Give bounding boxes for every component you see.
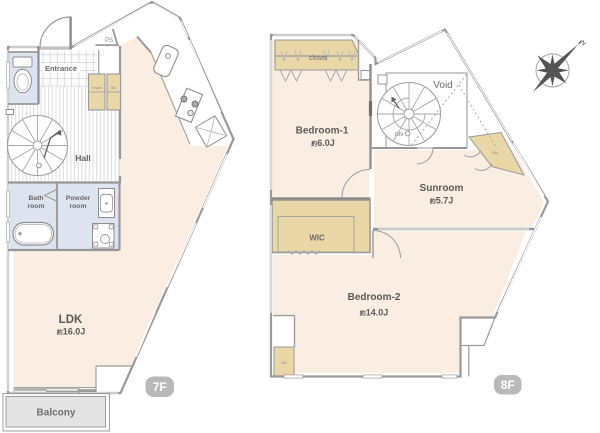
svg-text:Bedroom-2: Bedroom-2	[348, 292, 401, 303]
svg-text:Balcony: Balcony	[37, 408, 76, 419]
svg-text:DN: DN	[395, 132, 403, 138]
svg-text:room: room	[28, 203, 45, 210]
svg-text:PS: PS	[105, 38, 113, 44]
svg-text:7F: 7F	[153, 380, 167, 394]
svg-text:WIC: WIC	[309, 234, 325, 243]
svg-text:closet: closet	[309, 55, 327, 62]
svg-text:Hall: Hall	[75, 153, 91, 163]
svg-text:Towel: Towel	[91, 85, 101, 90]
svg-text:8F: 8F	[501, 378, 515, 392]
svg-text:Entrance: Entrance	[45, 64, 77, 73]
svg-text:Sto: Sto	[281, 361, 287, 365]
svg-text:LDK: LDK	[59, 314, 83, 326]
svg-text:Sunroom: Sunroom	[420, 183, 464, 194]
svg-text:Powder: Powder	[66, 195, 91, 202]
svg-text:room: room	[70, 203, 87, 210]
svg-text:Sto: Sto	[492, 151, 498, 155]
svg-text:Bath: Bath	[28, 195, 43, 202]
svg-text:Void: Void	[433, 80, 452, 91]
svg-text:Bedroom-1: Bedroom-1	[296, 126, 349, 137]
svg-text:Sto: Sto	[110, 85, 117, 90]
